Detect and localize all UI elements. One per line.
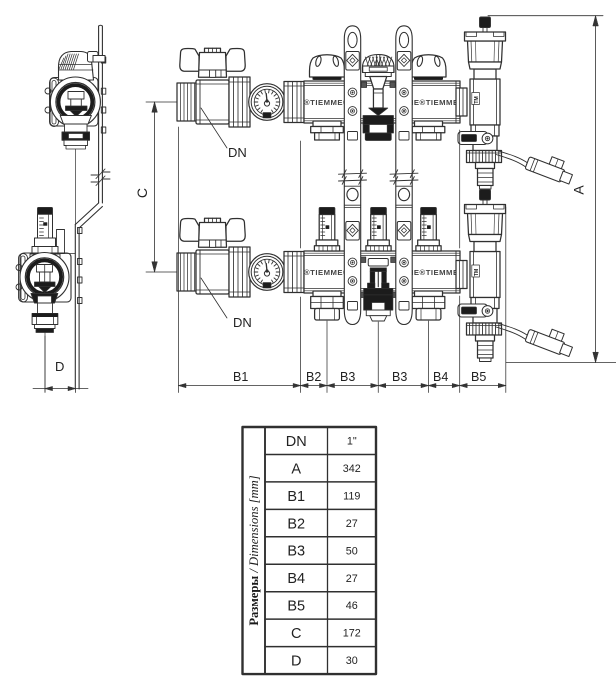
- svg-text:C: C: [134, 188, 150, 198]
- svg-text:B2: B2: [306, 370, 321, 384]
- svg-text:B4: B4: [287, 571, 305, 587]
- svg-text:B3: B3: [392, 370, 407, 384]
- svg-text:B2: B2: [287, 516, 305, 532]
- svg-text:27: 27: [346, 518, 358, 530]
- svg-text:46: 46: [346, 600, 358, 612]
- svg-text:27: 27: [346, 573, 358, 585]
- svg-text:ME®TIEMME: ME®TIEMME: [407, 98, 459, 107]
- svg-text:D: D: [55, 359, 64, 374]
- svg-text:B3: B3: [340, 370, 355, 384]
- svg-text:B3: B3: [287, 544, 305, 560]
- svg-text:D: D: [291, 654, 301, 670]
- svg-text:DN: DN: [228, 145, 247, 160]
- svg-text:A: A: [571, 185, 587, 195]
- svg-text:B5: B5: [471, 370, 486, 384]
- svg-text:50: 50: [346, 545, 358, 557]
- svg-text:119: 119: [343, 490, 360, 502]
- svg-text:®TIEMME®: ®TIEMME®: [304, 98, 349, 107]
- svg-text:C: C: [291, 626, 301, 642]
- svg-text:DN: DN: [286, 434, 307, 450]
- svg-text:B1: B1: [233, 370, 248, 384]
- svg-text:1": 1": [347, 436, 357, 448]
- svg-text:ME®TIEMME: ME®TIEMME: [407, 268, 459, 277]
- svg-text:30: 30: [346, 655, 358, 667]
- svg-text:B5: B5: [287, 599, 305, 615]
- svg-text:DN: DN: [233, 315, 252, 330]
- svg-text:Размеры / Dimensions [mm]: Размеры / Dimensions [mm]: [247, 475, 261, 625]
- svg-text:®TIEMME®: ®TIEMME®: [304, 268, 349, 277]
- svg-text:172: 172: [343, 628, 361, 640]
- svg-text:A: A: [291, 461, 301, 477]
- svg-text:B1: B1: [287, 489, 305, 505]
- svg-text:B4: B4: [433, 370, 448, 384]
- svg-text:342: 342: [343, 463, 361, 475]
